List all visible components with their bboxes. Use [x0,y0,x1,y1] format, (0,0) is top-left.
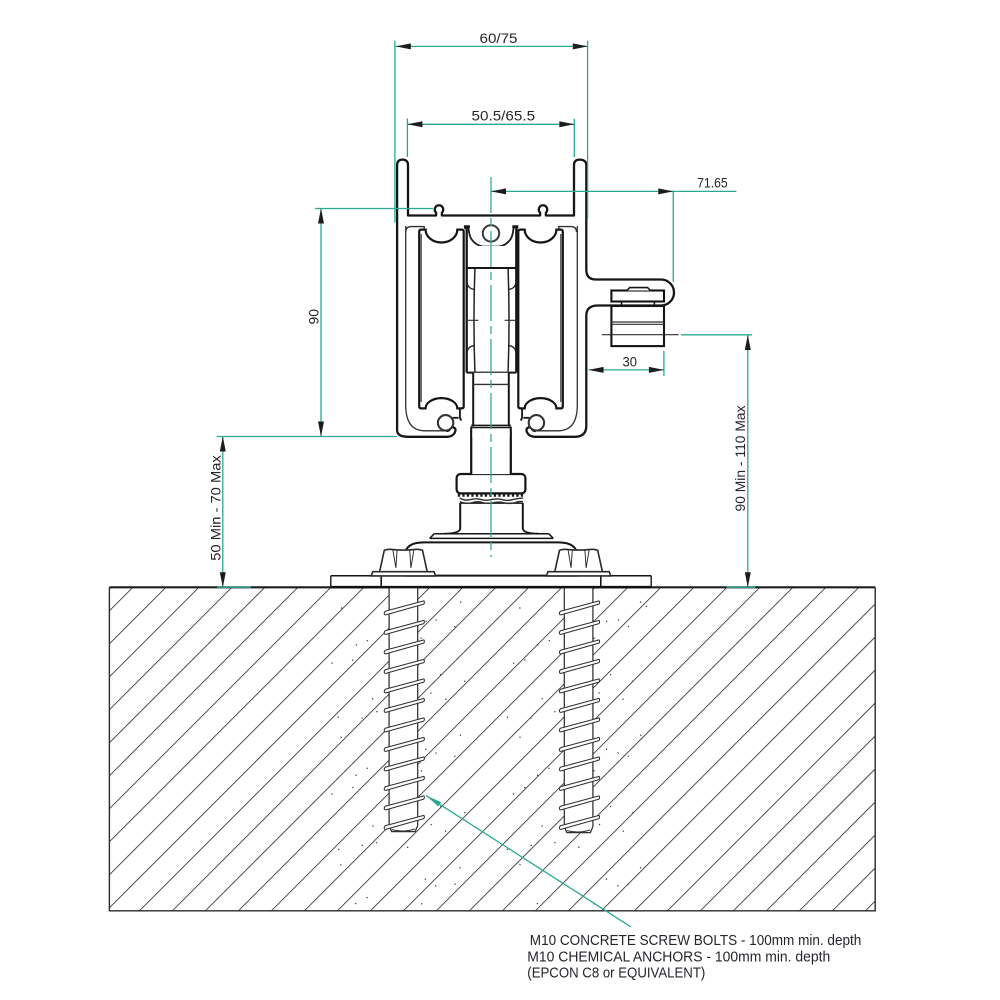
svg-text:50 Min - 70 Max: 50 Min - 70 Max [207,455,223,561]
svg-text:60/75: 60/75 [480,30,518,46]
svg-text:90 Min - 110 Max: 90 Min - 110 Max [732,406,748,512]
svg-text:(EPCON C8 or EQUIVALENT): (EPCON C8 or EQUIVALENT) [527,965,705,982]
svg-text:30: 30 [623,354,638,369]
svg-text:M10 CONCRETE SCREW BOLTS - 100: M10 CONCRETE SCREW BOLTS - 100mm min. de… [530,932,862,949]
svg-text:71.65: 71.65 [697,175,728,191]
svg-text:90: 90 [306,309,321,325]
svg-text:M10 CHEMICAL ANCHORS - 100mm m: M10 CHEMICAL ANCHORS - 100mm min. depth [527,948,830,965]
svg-text:50.5/65.5: 50.5/65.5 [472,108,536,124]
